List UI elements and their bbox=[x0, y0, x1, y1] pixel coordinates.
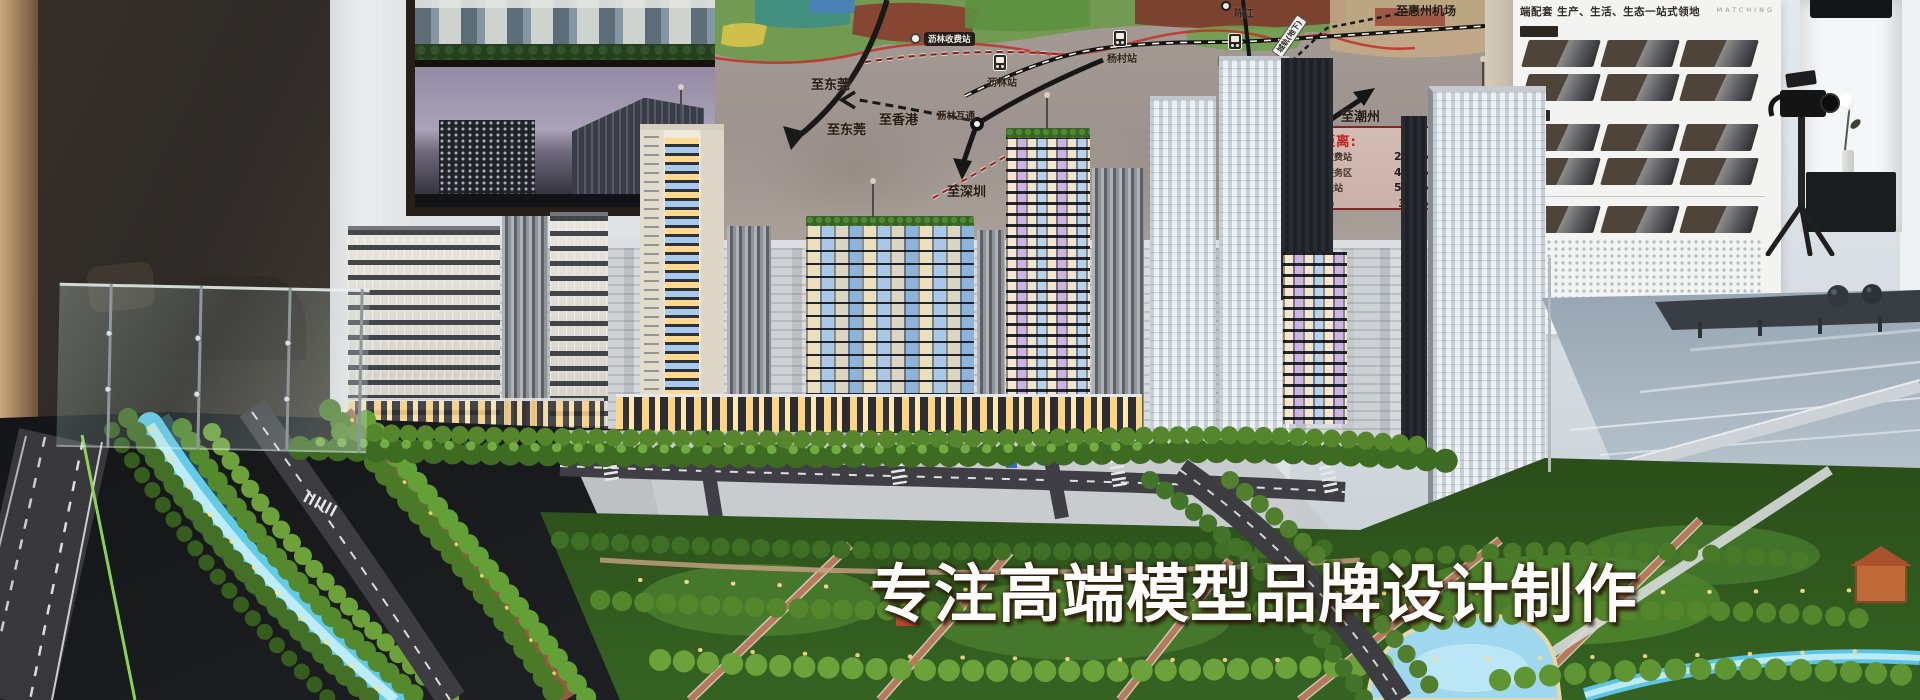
display-case-post bbox=[1548, 258, 1551, 472]
glass-clip bbox=[104, 385, 111, 392]
glass-balustrade bbox=[56, 283, 369, 453]
slogan-text: 专注高端模型品牌设计制作 bbox=[870, 544, 1660, 635]
glass-clip bbox=[105, 330, 112, 337]
showroom-photo: 至东莞 至东莞 至香港 至深圳 至潮州 至惠州机场 沥林收费站 沥林站 杨村站 … bbox=[0, 0, 1920, 700]
glass-panel bbox=[56, 283, 369, 453]
